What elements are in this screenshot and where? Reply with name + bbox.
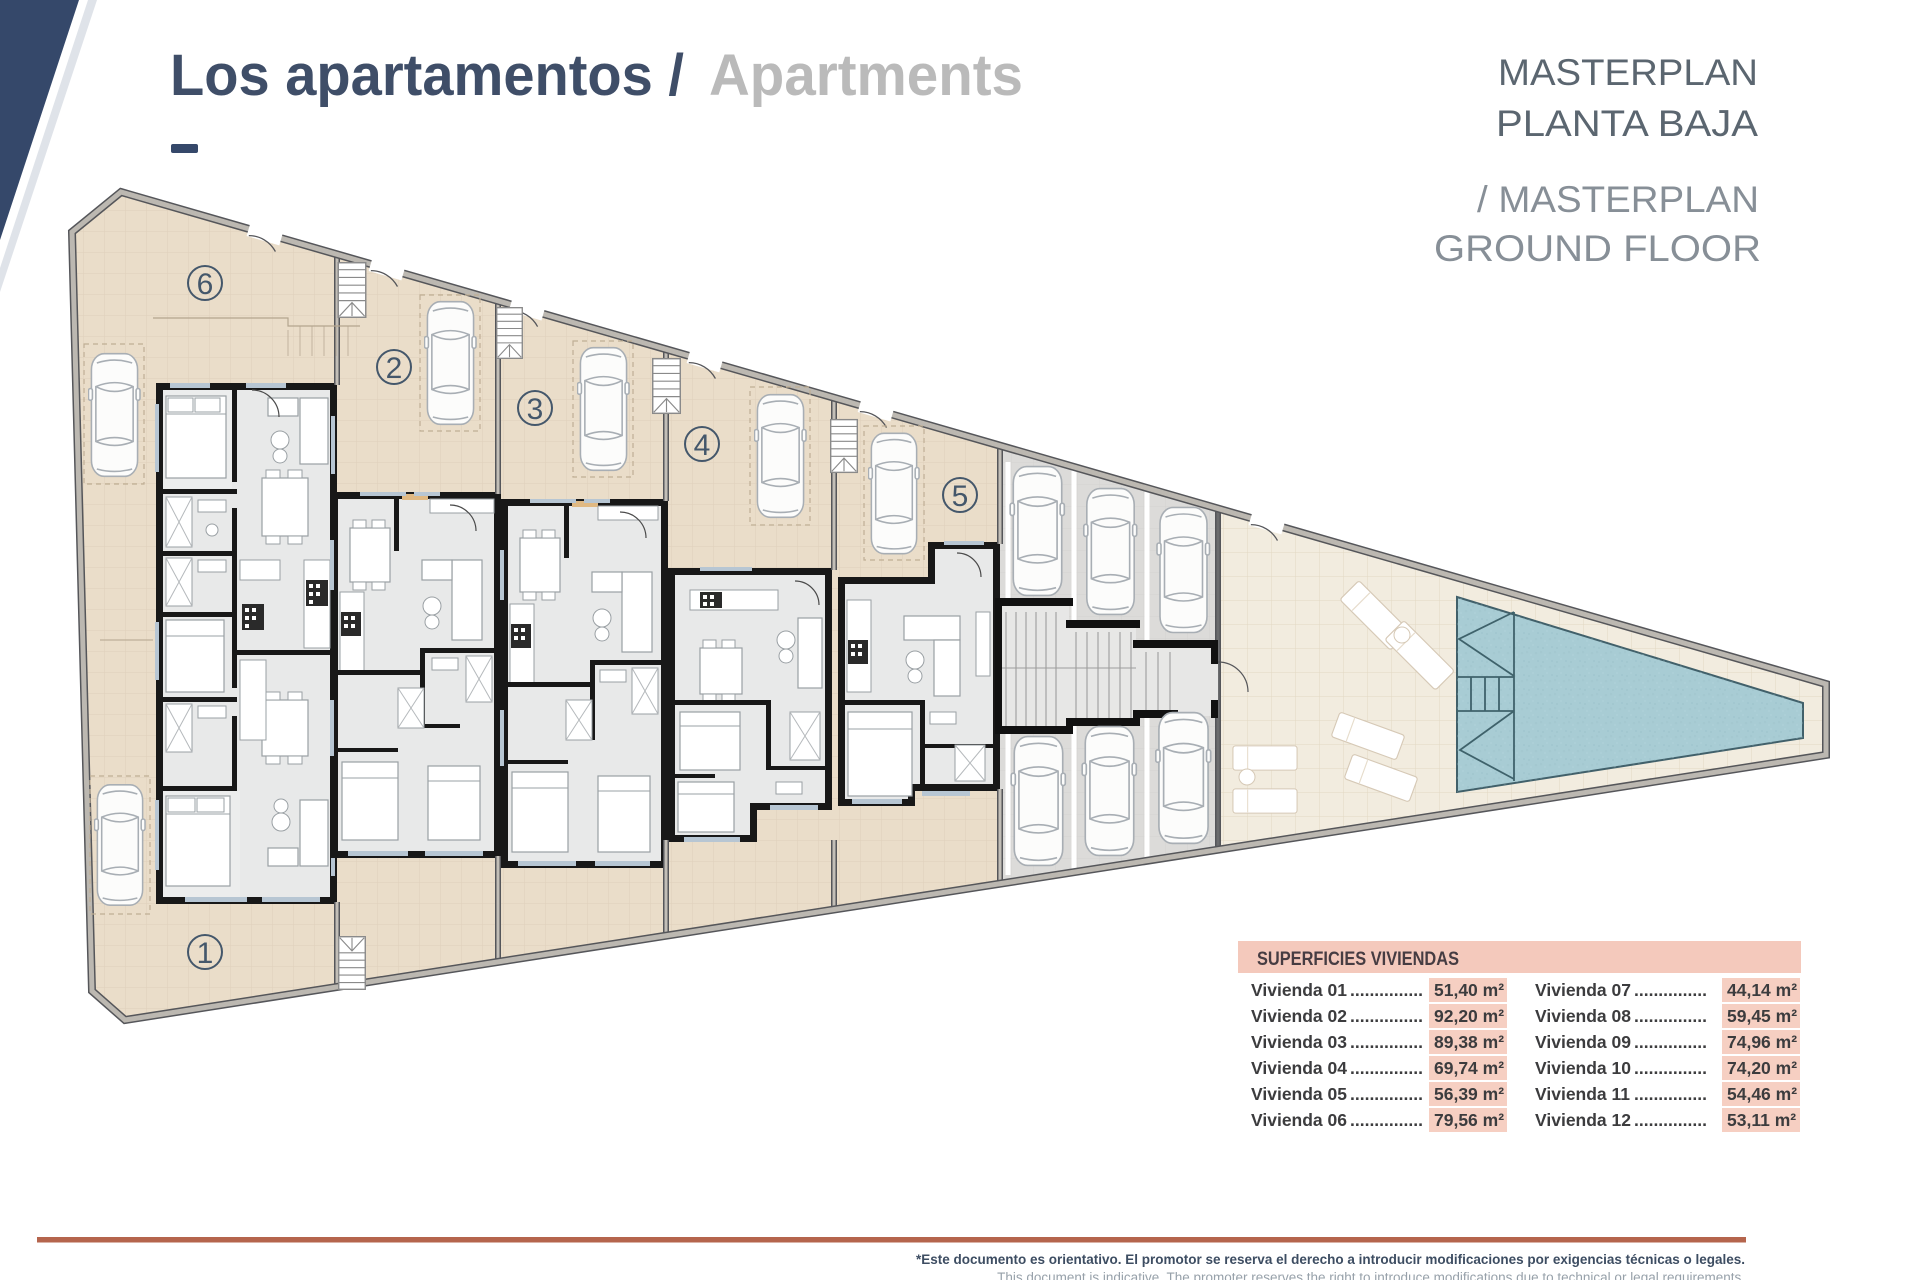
svg-text:SUPERFICIES VIVIENDAS: SUPERFICIES VIVIENDAS: [1257, 949, 1459, 970]
svg-text:Vivienda 06: Vivienda 06: [1251, 1110, 1347, 1130]
svg-text:59,45 m²: 59,45 m²: [1727, 1006, 1797, 1026]
svg-text:...............: ...............: [1634, 1084, 1707, 1104]
svg-text:6: 6: [197, 268, 214, 301]
svg-text:/ MASTERPLAN: / MASTERPLAN: [1477, 179, 1759, 220]
svg-text:MASTERPLAN: MASTERPLAN: [1498, 52, 1758, 93]
svg-text:Vivienda 08: Vivienda 08: [1535, 1006, 1631, 1026]
svg-text:*Este documento es orientativo: *Este documento es orientativo. El promo…: [916, 1252, 1745, 1267]
svg-text:...............: ...............: [1634, 1006, 1707, 1026]
svg-text:79,56 m²: 79,56 m²: [1434, 1110, 1504, 1130]
svg-text:GROUND FLOOR: GROUND FLOOR: [1434, 228, 1761, 269]
svg-text:74,96 m²: 74,96 m²: [1727, 1032, 1797, 1052]
svg-text:Vivienda 02: Vivienda 02: [1251, 1006, 1347, 1026]
svg-text:51,40 m²: 51,40 m²: [1434, 980, 1504, 1000]
svg-text:Vivienda 09: Vivienda 09: [1535, 1032, 1631, 1052]
svg-text:2: 2: [386, 352, 403, 385]
svg-text:...............: ...............: [1634, 980, 1707, 1000]
svg-text:1: 1: [197, 937, 214, 970]
svg-text:Vivienda 07: Vivienda 07: [1535, 980, 1631, 1000]
svg-text:PLANTA BAJA: PLANTA BAJA: [1496, 103, 1758, 144]
svg-text:54,46 m²: 54,46 m²: [1727, 1084, 1797, 1104]
svg-text:...............: ...............: [1350, 1084, 1423, 1104]
svg-text:44,14 m²: 44,14 m²: [1727, 980, 1797, 1000]
svg-text:This document is indicative. T: This document is indicative. The promote…: [997, 1270, 1745, 1280]
svg-text:53,11 m²: 53,11 m²: [1727, 1110, 1796, 1130]
svg-text:3: 3: [527, 393, 544, 426]
svg-text:...............: ...............: [1634, 1110, 1707, 1130]
svg-text:Vivienda 12: Vivienda 12: [1535, 1110, 1631, 1130]
svg-text:Vivienda 04: Vivienda 04: [1251, 1058, 1347, 1078]
svg-text:89,38 m²: 89,38 m²: [1434, 1032, 1504, 1052]
svg-text:...............: ...............: [1350, 980, 1423, 1000]
svg-text:74,20 m²: 74,20 m²: [1727, 1058, 1797, 1078]
svg-text:Vivienda 11: Vivienda 11: [1535, 1084, 1630, 1104]
svg-text:...............: ...............: [1350, 1006, 1423, 1026]
svg-text:4: 4: [694, 429, 711, 462]
svg-text:92,20 m²: 92,20 m²: [1434, 1006, 1504, 1026]
svg-text:Vivienda 10: Vivienda 10: [1535, 1058, 1631, 1078]
svg-text:56,39 m²: 56,39 m²: [1434, 1084, 1504, 1104]
svg-text:69,74 m²: 69,74 m²: [1434, 1058, 1504, 1078]
svg-text:...............: ...............: [1350, 1110, 1423, 1130]
svg-text:Vivienda 03: Vivienda 03: [1251, 1032, 1347, 1052]
svg-text:...............: ...............: [1350, 1032, 1423, 1052]
svg-text:...............: ...............: [1350, 1058, 1423, 1078]
svg-text:Apartments: Apartments: [709, 43, 1023, 108]
svg-text:...............: ...............: [1634, 1032, 1707, 1052]
svg-text:Vivienda 01: Vivienda 01: [1251, 980, 1347, 1000]
svg-text:Los apartamentos /: Los apartamentos /: [170, 43, 684, 108]
svg-text:Vivienda 05: Vivienda 05: [1251, 1084, 1347, 1104]
svg-text:5: 5: [952, 480, 969, 513]
svg-text:...............: ...............: [1634, 1058, 1707, 1078]
